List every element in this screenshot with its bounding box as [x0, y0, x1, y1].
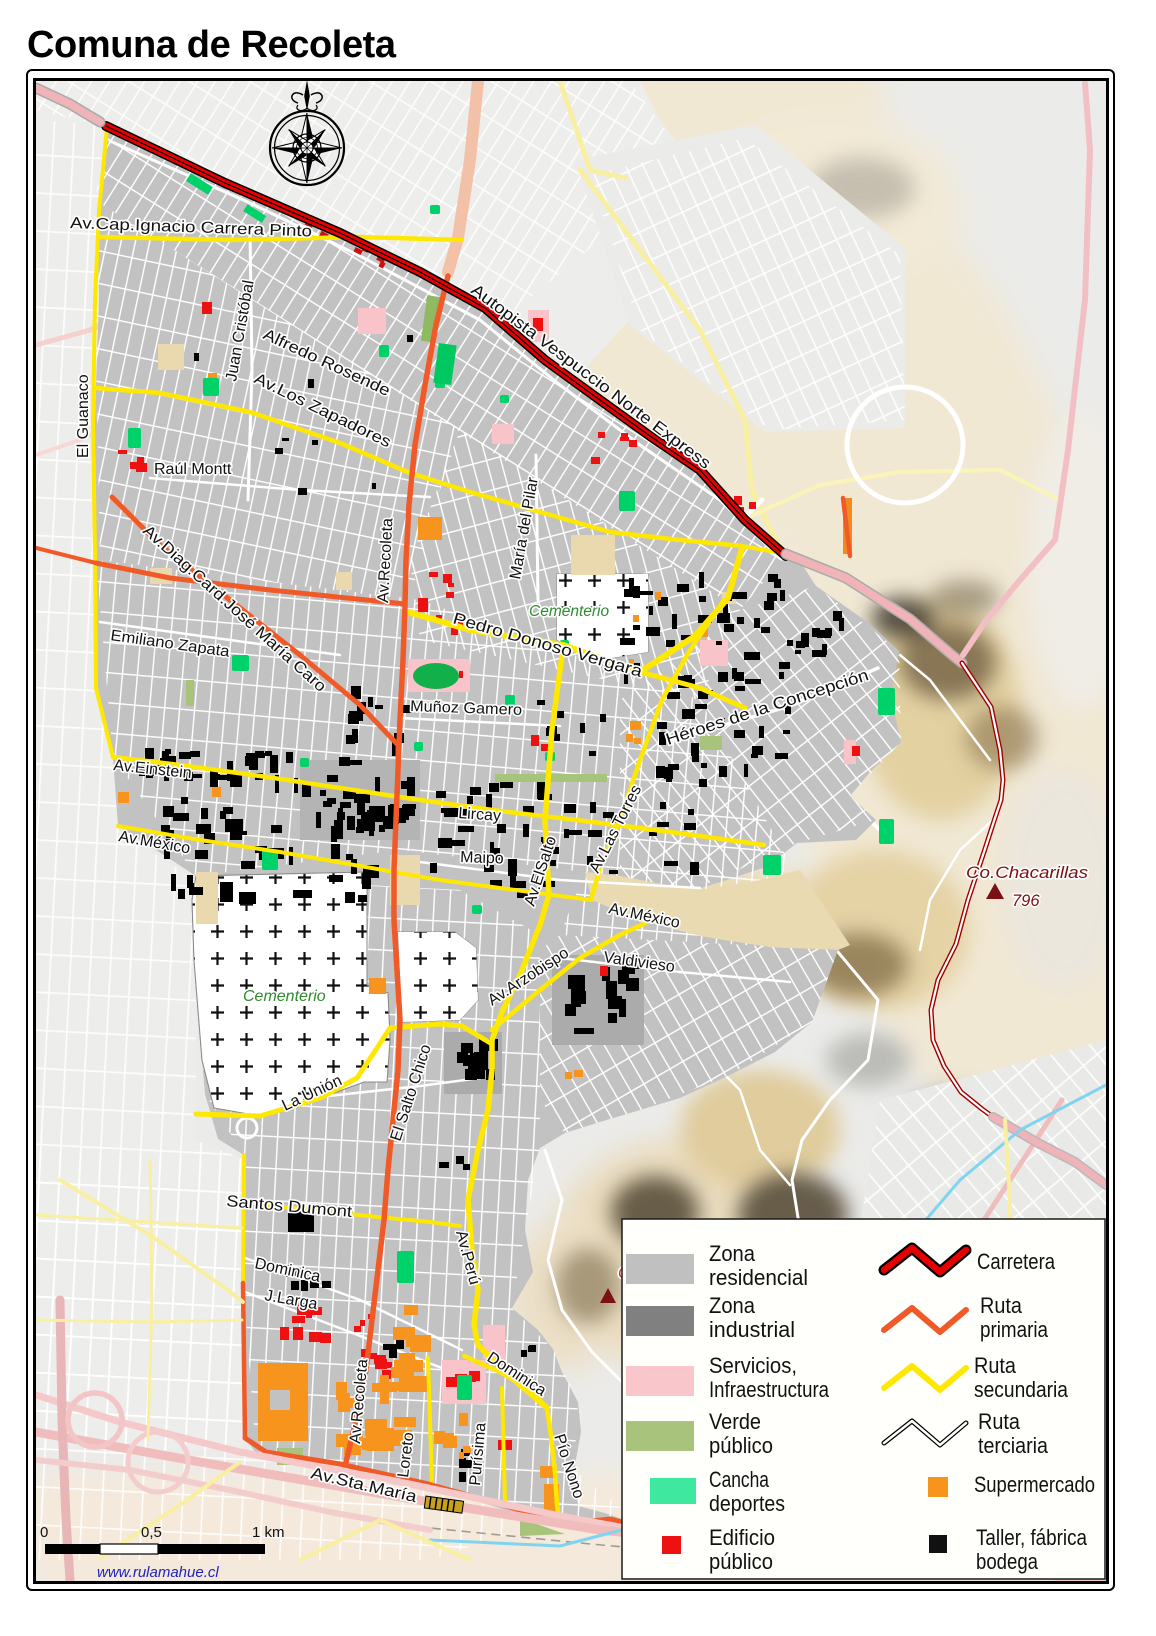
- svg-text:Supermercado: Supermercado: [974, 1472, 1095, 1497]
- svg-text:0,5: 0,5: [141, 1524, 162, 1541]
- svg-text:Zona: Zona: [709, 1293, 756, 1318]
- svg-text:www.rulamahue.cl: www.rulamahue.cl: [97, 1564, 219, 1581]
- svg-text:Edificio: Edificio: [709, 1525, 775, 1550]
- svg-text:Servicios,: Servicios,: [709, 1353, 797, 1378]
- svg-text:público: público: [709, 1433, 773, 1458]
- svg-text:1 km: 1 km: [252, 1524, 285, 1541]
- svg-text:terciaria: terciaria: [978, 1433, 1049, 1458]
- svg-text:Zona: Zona: [709, 1241, 756, 1266]
- svg-text:público: público: [709, 1549, 773, 1574]
- svg-text:Carretera: Carretera: [977, 1249, 1056, 1274]
- svg-text:Cementerio: Cementerio: [243, 988, 326, 1005]
- svg-text:secundaria: secundaria: [974, 1377, 1069, 1402]
- svg-text:Ruta: Ruta: [978, 1409, 1021, 1434]
- svg-text:Co.Chacarillas: Co.Chacarillas: [966, 863, 1089, 882]
- svg-text:Raúl Montt: Raúl Montt: [154, 461, 232, 478]
- svg-text:Cementerio: Cementerio: [529, 603, 609, 620]
- svg-text:0: 0: [40, 1524, 48, 1541]
- svg-text:Infraestructura: Infraestructura: [709, 1377, 830, 1402]
- svg-text:industrial: industrial: [709, 1317, 795, 1342]
- svg-text:Taller, fábrica: Taller, fábrica: [976, 1525, 1088, 1550]
- svg-text:bodega: bodega: [976, 1549, 1039, 1574]
- svg-text:Ruta: Ruta: [980, 1293, 1023, 1318]
- svg-text:Ruta: Ruta: [974, 1353, 1017, 1378]
- svg-text:primaria: primaria: [980, 1317, 1049, 1342]
- svg-text:Maipo: Maipo: [460, 849, 504, 868]
- svg-text:Lircay: Lircay: [458, 805, 502, 825]
- svg-text:deportes: deportes: [709, 1491, 785, 1516]
- svg-text:residencial: residencial: [709, 1265, 808, 1290]
- svg-text:796: 796: [1012, 892, 1040, 910]
- svg-text:El Guanaco: El Guanaco: [75, 374, 92, 458]
- svg-text:Cancha: Cancha: [709, 1467, 770, 1492]
- svg-text:Verde: Verde: [709, 1409, 761, 1434]
